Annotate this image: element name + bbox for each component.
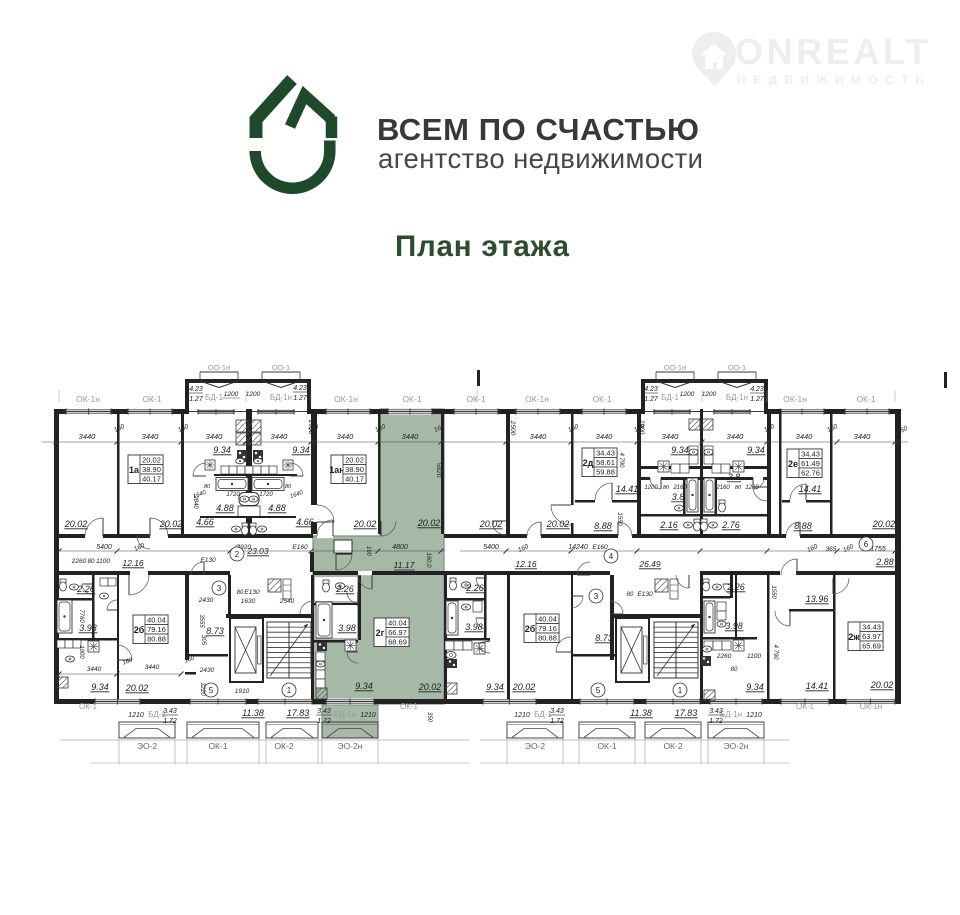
svg-text:5400: 5400 bbox=[483, 544, 499, 551]
svg-text:1550: 1550 bbox=[770, 585, 776, 599]
svg-text:4.66: 4.66 bbox=[296, 517, 314, 527]
svg-text:3440: 3440 bbox=[145, 664, 160, 671]
svg-text:1ан: 1ан bbox=[329, 465, 344, 475]
svg-text:2430: 2430 bbox=[198, 597, 214, 604]
svg-text:БД-1: БД-1 bbox=[205, 393, 223, 402]
svg-text:8.73: 8.73 bbox=[595, 633, 613, 643]
svg-text:5: 5 bbox=[209, 686, 214, 695]
svg-text:2260: 2260 bbox=[71, 558, 87, 565]
svg-text:79.16: 79.16 bbox=[538, 624, 557, 633]
svg-text:20.02: 20.02 bbox=[159, 519, 183, 529]
svg-text:160: 160 bbox=[517, 543, 530, 554]
svg-text:1.27: 1.27 bbox=[644, 396, 659, 403]
svg-text:2.88: 2.88 bbox=[875, 557, 894, 567]
svg-text:План этажа: План этажа bbox=[395, 230, 570, 263]
svg-text:E130: E130 bbox=[244, 589, 260, 596]
svg-text:80: 80 bbox=[731, 667, 738, 673]
svg-text:34.43: 34.43 bbox=[596, 449, 615, 458]
svg-text:40.17: 40.17 bbox=[142, 475, 161, 484]
svg-text:11.38: 11.38 bbox=[630, 708, 652, 718]
svg-text:365: 365 bbox=[826, 546, 837, 553]
svg-text:2.26: 2.26 bbox=[726, 582, 745, 592]
svg-text:1200: 1200 bbox=[702, 391, 717, 398]
svg-text:17.83: 17.83 bbox=[287, 708, 310, 718]
svg-text:2260: 2260 bbox=[716, 653, 732, 660]
svg-text:1210: 1210 bbox=[360, 712, 376, 719]
svg-text:4 790: 4 790 bbox=[772, 644, 778, 660]
svg-text:4.23: 4.23 bbox=[644, 386, 658, 393]
svg-text:1200: 1200 bbox=[680, 391, 695, 398]
svg-text:1910: 1910 bbox=[235, 688, 250, 695]
svg-text:ЭО-2н: ЭО-2н bbox=[724, 741, 749, 751]
svg-text:E130: E130 bbox=[637, 591, 653, 598]
svg-text:20.02: 20.02 bbox=[479, 519, 503, 529]
svg-text:ОК-1: ОК-1 bbox=[142, 394, 161, 404]
svg-text:4.23: 4.23 bbox=[189, 386, 203, 393]
svg-text:E130: E130 bbox=[200, 557, 216, 564]
svg-text:6: 6 bbox=[864, 540, 869, 549]
svg-text:80: 80 bbox=[237, 590, 244, 596]
svg-text:8.88: 8.88 bbox=[594, 521, 612, 531]
svg-text:1200: 1200 bbox=[224, 391, 239, 398]
svg-text:2.76: 2.76 bbox=[721, 520, 740, 530]
svg-text:1720: 1720 bbox=[226, 492, 240, 498]
svg-text:80: 80 bbox=[627, 592, 634, 598]
svg-text:5820: 5820 bbox=[435, 463, 442, 478]
svg-text:65.69: 65.69 bbox=[862, 642, 881, 651]
svg-text:2.26: 2.26 bbox=[335, 584, 354, 594]
svg-text:160,0: 160,0 bbox=[425, 552, 431, 568]
svg-text:ОК-1: ОК-1 bbox=[79, 702, 98, 711]
svg-text:2900: 2900 bbox=[638, 419, 645, 435]
svg-text:160: 160 bbox=[842, 543, 855, 554]
svg-text:14240: 14240 bbox=[568, 544, 588, 551]
svg-text:4.88: 4.88 bbox=[216, 503, 234, 513]
svg-text:9.34: 9.34 bbox=[746, 682, 764, 692]
svg-text:2160: 2160 bbox=[715, 485, 730, 491]
svg-text:40.04: 40.04 bbox=[538, 615, 557, 624]
svg-text:23.03: 23.03 bbox=[246, 546, 269, 556]
svg-text:ОК-1н: ОК-1н bbox=[860, 702, 882, 711]
svg-text:ОК-1н: ОК-1н bbox=[783, 394, 807, 404]
svg-text:1.72: 1.72 bbox=[163, 718, 177, 725]
svg-text:2е: 2е bbox=[788, 459, 798, 469]
svg-text:11.17: 11.17 bbox=[394, 560, 415, 570]
svg-text:80: 80 bbox=[735, 485, 742, 491]
svg-text:3440: 3440 bbox=[79, 432, 97, 441]
svg-text:38.90: 38.90 bbox=[142, 465, 161, 474]
svg-text:2б: 2б bbox=[134, 625, 145, 635]
svg-text:3.8: 3.8 bbox=[672, 492, 685, 502]
svg-text:9.34: 9.34 bbox=[292, 445, 310, 455]
svg-text:2430: 2430 bbox=[199, 667, 215, 674]
svg-text:2840: 2840 bbox=[192, 494, 198, 509]
svg-text:13.96: 13.96 bbox=[806, 594, 829, 604]
svg-text:20.02: 20.02 bbox=[417, 518, 441, 528]
svg-text:2ж: 2ж bbox=[848, 632, 860, 642]
svg-text:160: 160 bbox=[567, 423, 580, 434]
svg-text:ОО-1н: ОО-1н bbox=[664, 363, 686, 372]
svg-text:7760: 7760 bbox=[78, 609, 84, 623]
svg-text:3: 3 bbox=[217, 584, 222, 593]
svg-text:1100: 1100 bbox=[747, 653, 761, 660]
svg-text:1210: 1210 bbox=[746, 712, 762, 719]
svg-text:4 790: 4 790 bbox=[618, 452, 624, 468]
svg-text:ОК-1: ОК-1 bbox=[597, 741, 616, 751]
svg-text:160: 160 bbox=[365, 546, 371, 557]
svg-text:79.16: 79.16 bbox=[147, 625, 166, 634]
svg-text:20.02: 20.02 bbox=[142, 456, 161, 465]
svg-text:ОО-1н: ОО-1н bbox=[208, 363, 230, 372]
svg-text:3.43: 3.43 bbox=[709, 708, 723, 715]
svg-text:ОК-1н: ОК-1н bbox=[525, 394, 549, 404]
svg-text:12.16: 12.16 bbox=[122, 558, 144, 568]
svg-text:26.49: 26.49 bbox=[638, 559, 661, 569]
svg-text:20.02: 20.02 bbox=[870, 680, 894, 690]
svg-text:1550: 1550 bbox=[616, 512, 622, 526]
svg-text:9.34: 9.34 bbox=[355, 681, 373, 691]
svg-text:БД-1н: БД-1н bbox=[726, 393, 748, 402]
svg-text:40.04: 40.04 bbox=[388, 619, 407, 628]
svg-text:3.43: 3.43 bbox=[317, 708, 331, 715]
svg-text:63.97: 63.97 bbox=[862, 632, 881, 641]
svg-text:ОК-1н: ОК-1н bbox=[334, 394, 358, 404]
svg-text:1.27: 1.27 bbox=[189, 396, 204, 403]
svg-text:E160: E160 bbox=[292, 544, 308, 551]
svg-text:305: 305 bbox=[200, 635, 206, 646]
svg-text:4: 4 bbox=[609, 552, 614, 561]
svg-text:1200: 1200 bbox=[246, 391, 261, 398]
svg-text:3.98: 3.98 bbox=[79, 623, 97, 633]
svg-text:1900: 1900 bbox=[78, 645, 84, 659]
svg-text:59.88: 59.88 bbox=[596, 468, 615, 477]
svg-text:4800: 4800 bbox=[392, 544, 408, 551]
svg-text:1.27: 1.27 bbox=[293, 395, 308, 402]
svg-text:38.90: 38.90 bbox=[345, 465, 364, 474]
svg-text:ОК-1: ОК-1 bbox=[796, 702, 815, 711]
svg-text:1: 1 bbox=[678, 686, 683, 695]
svg-text:3555: 3555 bbox=[198, 614, 204, 628]
svg-text:20.02: 20.02 bbox=[345, 456, 364, 465]
svg-text:11.38: 11.38 bbox=[242, 708, 264, 718]
svg-text:1100: 1100 bbox=[96, 558, 110, 565]
svg-text:8.73: 8.73 bbox=[206, 626, 224, 636]
svg-text:3.98: 3.98 bbox=[725, 621, 743, 631]
svg-text:80: 80 bbox=[663, 485, 670, 491]
svg-text:58.61: 58.61 bbox=[596, 458, 615, 467]
svg-text:9.34: 9.34 bbox=[91, 682, 109, 692]
svg-text:9.34: 9.34 bbox=[747, 445, 765, 455]
svg-text:2540: 2540 bbox=[279, 598, 295, 605]
svg-text:62.76: 62.76 bbox=[801, 469, 820, 478]
svg-text:E160: E160 bbox=[592, 544, 608, 551]
svg-text:66.97: 66.97 bbox=[388, 628, 407, 637]
svg-text:ЭО-2н: ЭО-2н bbox=[338, 741, 363, 751]
svg-text:БД-1н: БД-1н bbox=[270, 393, 292, 402]
svg-text:3440: 3440 bbox=[530, 432, 548, 441]
svg-text:61.49: 61.49 bbox=[801, 459, 820, 468]
svg-text:2.16: 2.16 bbox=[659, 520, 678, 530]
svg-text:2160: 2160 bbox=[672, 485, 687, 491]
svg-text:40.04: 40.04 bbox=[147, 616, 166, 625]
svg-text:1а: 1а bbox=[129, 465, 140, 475]
svg-text:3440: 3440 bbox=[206, 432, 224, 441]
svg-text:20.02: 20.02 bbox=[512, 682, 536, 692]
svg-text:3440: 3440 bbox=[596, 432, 614, 441]
svg-text:2б: 2б bbox=[525, 624, 536, 634]
svg-text:3.98: 3.98 bbox=[338, 623, 356, 633]
svg-text:ОК-1н: ОК-1н bbox=[76, 394, 100, 404]
svg-text:2г: 2г bbox=[376, 628, 385, 638]
svg-text:ОО-1: ОО-1 bbox=[728, 363, 746, 372]
svg-text:5400: 5400 bbox=[96, 544, 112, 551]
svg-text:350: 350 bbox=[426, 712, 432, 723]
svg-text:БД-1: БД-1 bbox=[661, 393, 679, 402]
svg-text:17.83: 17.83 bbox=[675, 708, 698, 718]
svg-text:9.34: 9.34 bbox=[671, 445, 689, 455]
svg-text:160: 160 bbox=[826, 423, 839, 434]
svg-text:3440: 3440 bbox=[337, 432, 355, 441]
svg-text:160: 160 bbox=[806, 543, 819, 554]
svg-text:1: 1 bbox=[287, 686, 292, 695]
svg-text:ОК-1: ОК-1 bbox=[856, 394, 875, 404]
svg-text:ONREALT: ONREALT bbox=[735, 31, 932, 72]
svg-text:14.41: 14.41 bbox=[616, 484, 639, 494]
svg-text:1630: 1630 bbox=[241, 598, 256, 605]
svg-text:1.72: 1.72 bbox=[550, 718, 564, 725]
svg-text:3220: 3220 bbox=[199, 682, 205, 696]
svg-text:ОК-1: ОК-1 bbox=[402, 394, 421, 404]
svg-text:20.02: 20.02 bbox=[64, 519, 88, 529]
svg-text:1.27: 1.27 bbox=[750, 396, 765, 403]
svg-text:80: 80 bbox=[285, 484, 292, 490]
svg-text:1210: 1210 bbox=[514, 712, 530, 719]
svg-text:2д: 2д bbox=[583, 458, 594, 468]
svg-text:34.43: 34.43 bbox=[801, 450, 820, 459]
svg-text:БД-1н: БД-1н bbox=[334, 710, 356, 719]
svg-text:68.69: 68.69 bbox=[388, 638, 407, 647]
svg-text:агентство недвижимости: агентство недвижимости bbox=[378, 143, 703, 174]
svg-text:1210: 1210 bbox=[128, 712, 144, 719]
svg-text:9.34: 9.34 bbox=[486, 682, 504, 692]
svg-text:8.88: 8.88 bbox=[794, 521, 812, 531]
svg-text:4.66: 4.66 bbox=[196, 517, 214, 527]
svg-text:80: 80 bbox=[204, 484, 211, 490]
svg-text:4.23: 4.23 bbox=[293, 385, 307, 392]
svg-text:3440: 3440 bbox=[662, 432, 680, 441]
svg-text:ОК-2: ОК-2 bbox=[274, 741, 293, 751]
svg-text:3440: 3440 bbox=[402, 432, 420, 441]
svg-text:3440: 3440 bbox=[87, 666, 102, 673]
svg-text:20.02: 20.02 bbox=[872, 519, 896, 529]
svg-text:3440: 3440 bbox=[142, 432, 160, 441]
svg-text:ОК-1: ОК-1 bbox=[400, 702, 419, 711]
svg-text:160: 160 bbox=[133, 542, 146, 553]
svg-text:80.88: 80.88 bbox=[147, 635, 166, 644]
svg-text:20.02: 20.02 bbox=[125, 683, 149, 693]
svg-text:14.41: 14.41 bbox=[799, 484, 822, 494]
svg-text:ОК-1: ОК-1 bbox=[466, 394, 485, 404]
svg-text:ОК-1: ОК-1 bbox=[592, 394, 611, 404]
svg-text:20.02: 20.02 bbox=[546, 519, 570, 529]
svg-text:2900: 2900 bbox=[307, 419, 314, 435]
svg-text:ЭО-2: ЭО-2 bbox=[525, 741, 546, 751]
svg-text:20.02: 20.02 bbox=[418, 682, 442, 692]
svg-text:3.43: 3.43 bbox=[163, 708, 177, 715]
svg-text:3440: 3440 bbox=[727, 432, 745, 441]
svg-text:12.16: 12.16 bbox=[515, 559, 537, 569]
svg-text:3440: 3440 bbox=[796, 432, 814, 441]
svg-text:ОК-2: ОК-2 bbox=[663, 741, 682, 751]
svg-text:1720: 1720 bbox=[259, 492, 273, 498]
svg-text:ОК-1: ОК-1 bbox=[208, 741, 227, 751]
svg-text:1.72: 1.72 bbox=[317, 718, 331, 725]
svg-text:1.72: 1.72 bbox=[709, 718, 723, 725]
svg-text:5: 5 bbox=[596, 686, 601, 695]
svg-text:2: 2 bbox=[235, 550, 240, 559]
svg-text:34.43: 34.43 bbox=[862, 623, 881, 632]
svg-text:20.02: 20.02 bbox=[353, 519, 377, 529]
svg-text:БД-1н: БД-1н bbox=[720, 710, 742, 719]
svg-text:ОО-1: ОО-1 bbox=[272, 363, 290, 372]
svg-text:3.98: 3.98 bbox=[465, 622, 483, 632]
svg-text:3.8: 3.8 bbox=[728, 472, 741, 482]
svg-text:3: 3 bbox=[594, 592, 599, 601]
svg-text:160: 160 bbox=[113, 423, 126, 434]
svg-text:4.88: 4.88 bbox=[268, 503, 286, 513]
svg-text:1640: 1640 bbox=[289, 490, 304, 500]
svg-text:4.23: 4.23 bbox=[750, 386, 764, 393]
svg-text:2500: 2500 bbox=[509, 420, 516, 436]
svg-text:3440: 3440 bbox=[854, 432, 872, 441]
svg-text:2.26: 2.26 bbox=[465, 583, 484, 593]
svg-text:80.88: 80.88 bbox=[538, 634, 557, 643]
svg-text:9.34: 9.34 bbox=[213, 445, 231, 455]
svg-text:40.17: 40.17 bbox=[345, 475, 364, 484]
svg-text:2.26: 2.26 bbox=[76, 584, 95, 594]
svg-text:3.43: 3.43 bbox=[550, 708, 564, 715]
svg-text:3440: 3440 bbox=[271, 432, 289, 441]
svg-text:80: 80 bbox=[88, 559, 95, 565]
svg-text:НЕДВИЖИМОСТЬ: НЕДВИЖИМОСТЬ bbox=[737, 73, 931, 87]
svg-text:14.41: 14.41 bbox=[806, 681, 829, 691]
svg-text:ЭО-2: ЭО-2 bbox=[137, 741, 158, 751]
svg-text:ВСЕМ ПО СЧАСТЬЮ: ВСЕМ ПО СЧАСТЬЮ bbox=[377, 112, 700, 147]
